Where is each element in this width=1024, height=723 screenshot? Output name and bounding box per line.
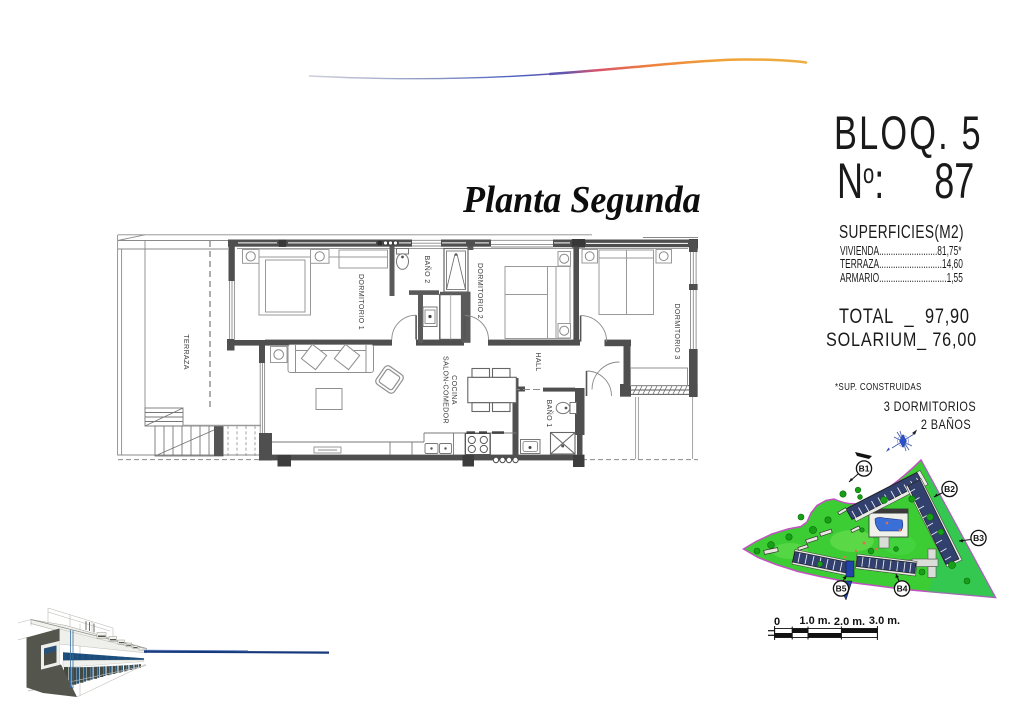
svg-text:DORMITORIO 1: DORMITORIO 1 (357, 274, 365, 330)
svg-text:TERRAZA: TERRAZA (182, 334, 190, 370)
svg-text:DORMITORIO 2: DORMITORIO 2 (476, 263, 484, 319)
svg-text:2.0 m.: 2.0 m. (834, 616, 865, 628)
svg-text:B4: B4 (897, 584, 908, 594)
svg-text:BAÑO 1: BAÑO 1 (545, 399, 554, 427)
svg-text:1.0 m.: 1.0 m. (799, 615, 830, 627)
svg-text:BAÑO 2: BAÑO 2 (423, 255, 432, 283)
svg-text:SALON-COMEDOR: SALON-COMEDOR (442, 356, 450, 424)
svg-text:B5: B5 (836, 584, 847, 594)
svg-text:B1: B1 (859, 464, 870, 474)
svg-text:B2: B2 (944, 484, 955, 494)
svg-text:3.0 m.: 3.0 m. (869, 615, 900, 627)
svg-text:B3: B3 (973, 533, 984, 543)
svg-text:DORMITORIO 3: DORMITORIO 3 (673, 303, 681, 359)
svg-text:HALL: HALL (534, 352, 542, 371)
svg-text:COCINA: COCINA (450, 375, 458, 405)
